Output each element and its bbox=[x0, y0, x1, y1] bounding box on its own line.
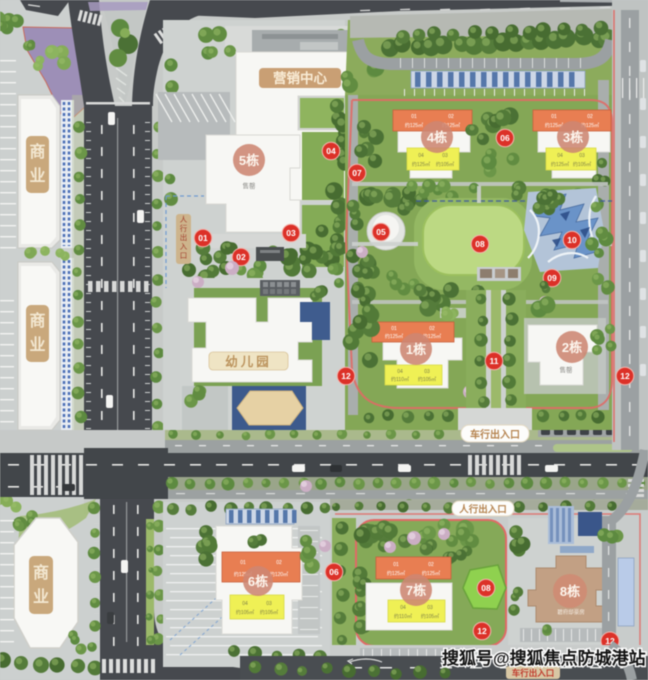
svg-text:约110㎡: 约110㎡ bbox=[394, 613, 412, 620]
svg-text:出: 出 bbox=[180, 232, 188, 242]
svg-text:商: 商 bbox=[29, 311, 45, 330]
svg-text:行: 行 bbox=[180, 223, 188, 233]
svg-text:04: 04 bbox=[242, 601, 248, 607]
svg-text:搜狐号@搜狐焦点防城港站: 搜狐号@搜狐焦点防城港站 bbox=[442, 648, 646, 668]
svg-text:02: 02 bbox=[276, 560, 282, 566]
svg-text:12: 12 bbox=[620, 371, 630, 381]
svg-text:5栋: 5栋 bbox=[239, 153, 259, 168]
svg-text:约120㎡: 约120㎡ bbox=[270, 571, 288, 578]
svg-text:10: 10 bbox=[567, 235, 577, 245]
svg-text:01: 01 bbox=[411, 114, 417, 120]
svg-text:04: 04 bbox=[418, 153, 424, 159]
svg-text:3栋: 3栋 bbox=[563, 130, 583, 145]
svg-text:06: 06 bbox=[329, 567, 339, 577]
svg-text:01: 01 bbox=[198, 233, 208, 243]
svg-text:人: 人 bbox=[180, 215, 188, 224]
svg-text:01: 01 bbox=[393, 562, 399, 568]
svg-text:口: 口 bbox=[180, 251, 188, 260]
svg-text:约105㎡: 约105㎡ bbox=[418, 376, 436, 383]
svg-text:业: 业 bbox=[29, 167, 45, 185]
svg-text:11: 11 bbox=[490, 356, 499, 366]
svg-text:约125㎡: 约125㎡ bbox=[412, 161, 430, 168]
svg-text:02: 02 bbox=[429, 326, 435, 332]
svg-text:04: 04 bbox=[400, 605, 406, 611]
svg-text:02: 02 bbox=[587, 114, 593, 120]
svg-text:人行出入口: 人行出入口 bbox=[459, 504, 507, 516]
svg-text:售罄: 售罄 bbox=[243, 181, 257, 190]
svg-text:约125㎡: 约125㎡ bbox=[387, 570, 405, 577]
svg-text:02: 02 bbox=[448, 114, 454, 120]
svg-text:约125㎡: 约125㎡ bbox=[385, 333, 403, 340]
svg-text:车行出入口: 车行出入口 bbox=[512, 668, 555, 678]
svg-text:02: 02 bbox=[236, 252, 246, 262]
svg-text:04: 04 bbox=[397, 369, 403, 375]
svg-text:约105㎡: 约105㎡ bbox=[236, 609, 254, 616]
svg-text:01: 01 bbox=[391, 326, 397, 332]
svg-text:8栋: 8栋 bbox=[560, 584, 580, 599]
svg-text:售罄: 售罄 bbox=[560, 365, 574, 374]
svg-text:03: 03 bbox=[266, 601, 272, 607]
svg-text:06: 06 bbox=[500, 133, 510, 143]
svg-text:幼儿园: 幼儿园 bbox=[225, 354, 272, 369]
svg-text:05: 05 bbox=[376, 227, 386, 237]
svg-text:约105㎡: 约105㎡ bbox=[421, 613, 439, 620]
svg-text:业: 业 bbox=[29, 336, 45, 354]
svg-text:商: 商 bbox=[29, 142, 45, 161]
svg-text:03: 03 bbox=[427, 605, 433, 611]
svg-text:约125㎡: 约125㎡ bbox=[551, 161, 569, 168]
svg-text:约110㎡: 约110㎡ bbox=[391, 376, 409, 383]
svg-text:01: 01 bbox=[551, 114, 557, 120]
svg-text:营销中心: 营销中心 bbox=[273, 70, 327, 86]
svg-text:约105㎡: 约105㎡ bbox=[260, 609, 278, 616]
svg-text:12: 12 bbox=[341, 371, 351, 381]
svg-text:07: 07 bbox=[352, 168, 362, 178]
svg-text:2栋: 2栋 bbox=[562, 340, 582, 355]
svg-text:入: 入 bbox=[180, 242, 188, 251]
svg-text:03: 03 bbox=[424, 369, 430, 375]
svg-text:1栋: 1栋 bbox=[406, 342, 426, 357]
svg-text:约105㎡: 约105㎡ bbox=[573, 161, 591, 168]
svg-text:09: 09 bbox=[547, 273, 557, 283]
svg-text:01: 01 bbox=[240, 560, 246, 566]
svg-text:03: 03 bbox=[286, 228, 296, 238]
svg-text:碧府邸豪房: 碧府邸豪房 bbox=[557, 608, 585, 616]
svg-text:业: 业 bbox=[33, 588, 49, 606]
svg-text:约105㎡: 约105㎡ bbox=[436, 161, 454, 168]
svg-text:03: 03 bbox=[579, 153, 585, 159]
svg-text:04: 04 bbox=[557, 153, 563, 159]
svg-text:04: 04 bbox=[326, 146, 336, 156]
svg-text:12: 12 bbox=[477, 626, 487, 636]
svg-text:约125㎡: 约125㎡ bbox=[405, 122, 423, 129]
svg-text:4栋: 4栋 bbox=[427, 130, 447, 145]
svg-text:7栋: 7栋 bbox=[406, 583, 426, 598]
svg-text:02: 02 bbox=[428, 562, 434, 568]
svg-text:车行出入口: 车行出入口 bbox=[470, 428, 520, 441]
svg-text:08: 08 bbox=[481, 583, 491, 593]
svg-text:08: 08 bbox=[475, 239, 485, 249]
svg-text:商: 商 bbox=[33, 563, 49, 582]
svg-text:03: 03 bbox=[442, 153, 448, 159]
svg-text:6栋: 6栋 bbox=[248, 574, 268, 589]
svg-text:约125㎡: 约125㎡ bbox=[422, 570, 440, 577]
